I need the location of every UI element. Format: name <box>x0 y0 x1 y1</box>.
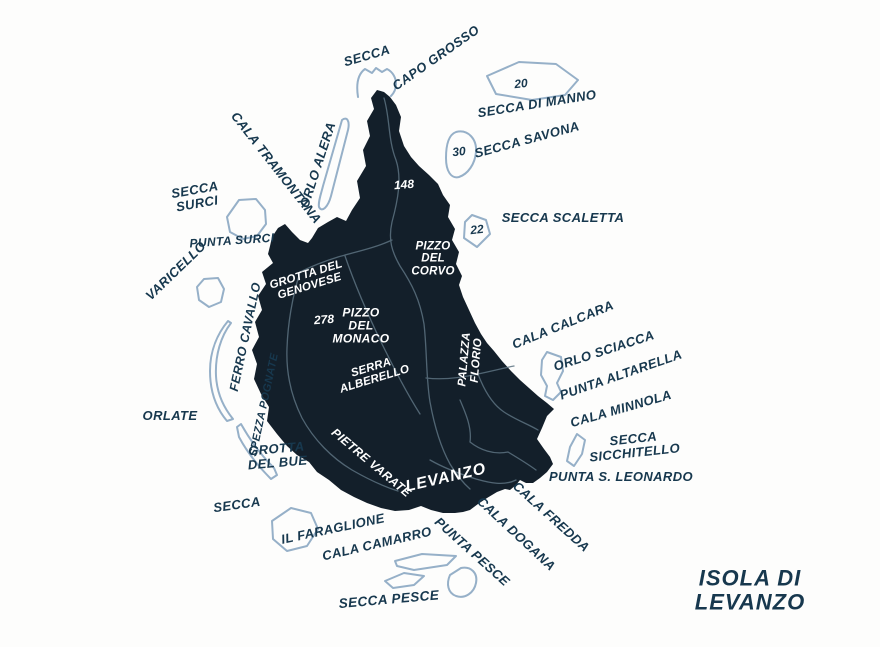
elevation-marker-278: 278 <box>314 313 335 327</box>
shoal-outline-ferro-cavallo <box>210 321 233 421</box>
shoal-outline-punta-pesce <box>448 568 476 597</box>
label-orlate: ORLATE <box>143 409 198 423</box>
levanzo-island-map: SECCA CAPO GROSSO 20 SECCA DI MANNO 30 S… <box>0 0 880 647</box>
shoal-outline-secca-sicchitello <box>567 434 585 466</box>
depth-marker-22: 22 <box>470 223 485 237</box>
elevation-marker-148: 148 <box>394 178 415 192</box>
shoal-outline-secca-pesce <box>385 573 424 588</box>
map-canvas <box>0 0 880 647</box>
depth-marker-30: 30 <box>452 145 467 159</box>
label-punta-s-leonardo: PUNTA S. LEONARDO <box>549 470 693 484</box>
label-pizzo-del-monaco: PIZZO DEL MONACO <box>332 307 389 346</box>
depth-marker-20: 20 <box>514 77 529 91</box>
shoal-outline-cala-camarro <box>395 554 456 570</box>
label-secca-scaletta: SECCA SCALETTA <box>502 211 625 225</box>
map-title: ISOLA DI LEVANZO <box>685 566 815 614</box>
shoal-outline-varicello <box>197 278 224 307</box>
label-palazza-florio: PALAZZA FLORIO <box>456 332 485 388</box>
label-pizzo-del-corvo: PIZZO DEL CORVO <box>411 240 454 277</box>
label-grotta-del-bue: GROTTA DEL BUE <box>246 439 308 472</box>
